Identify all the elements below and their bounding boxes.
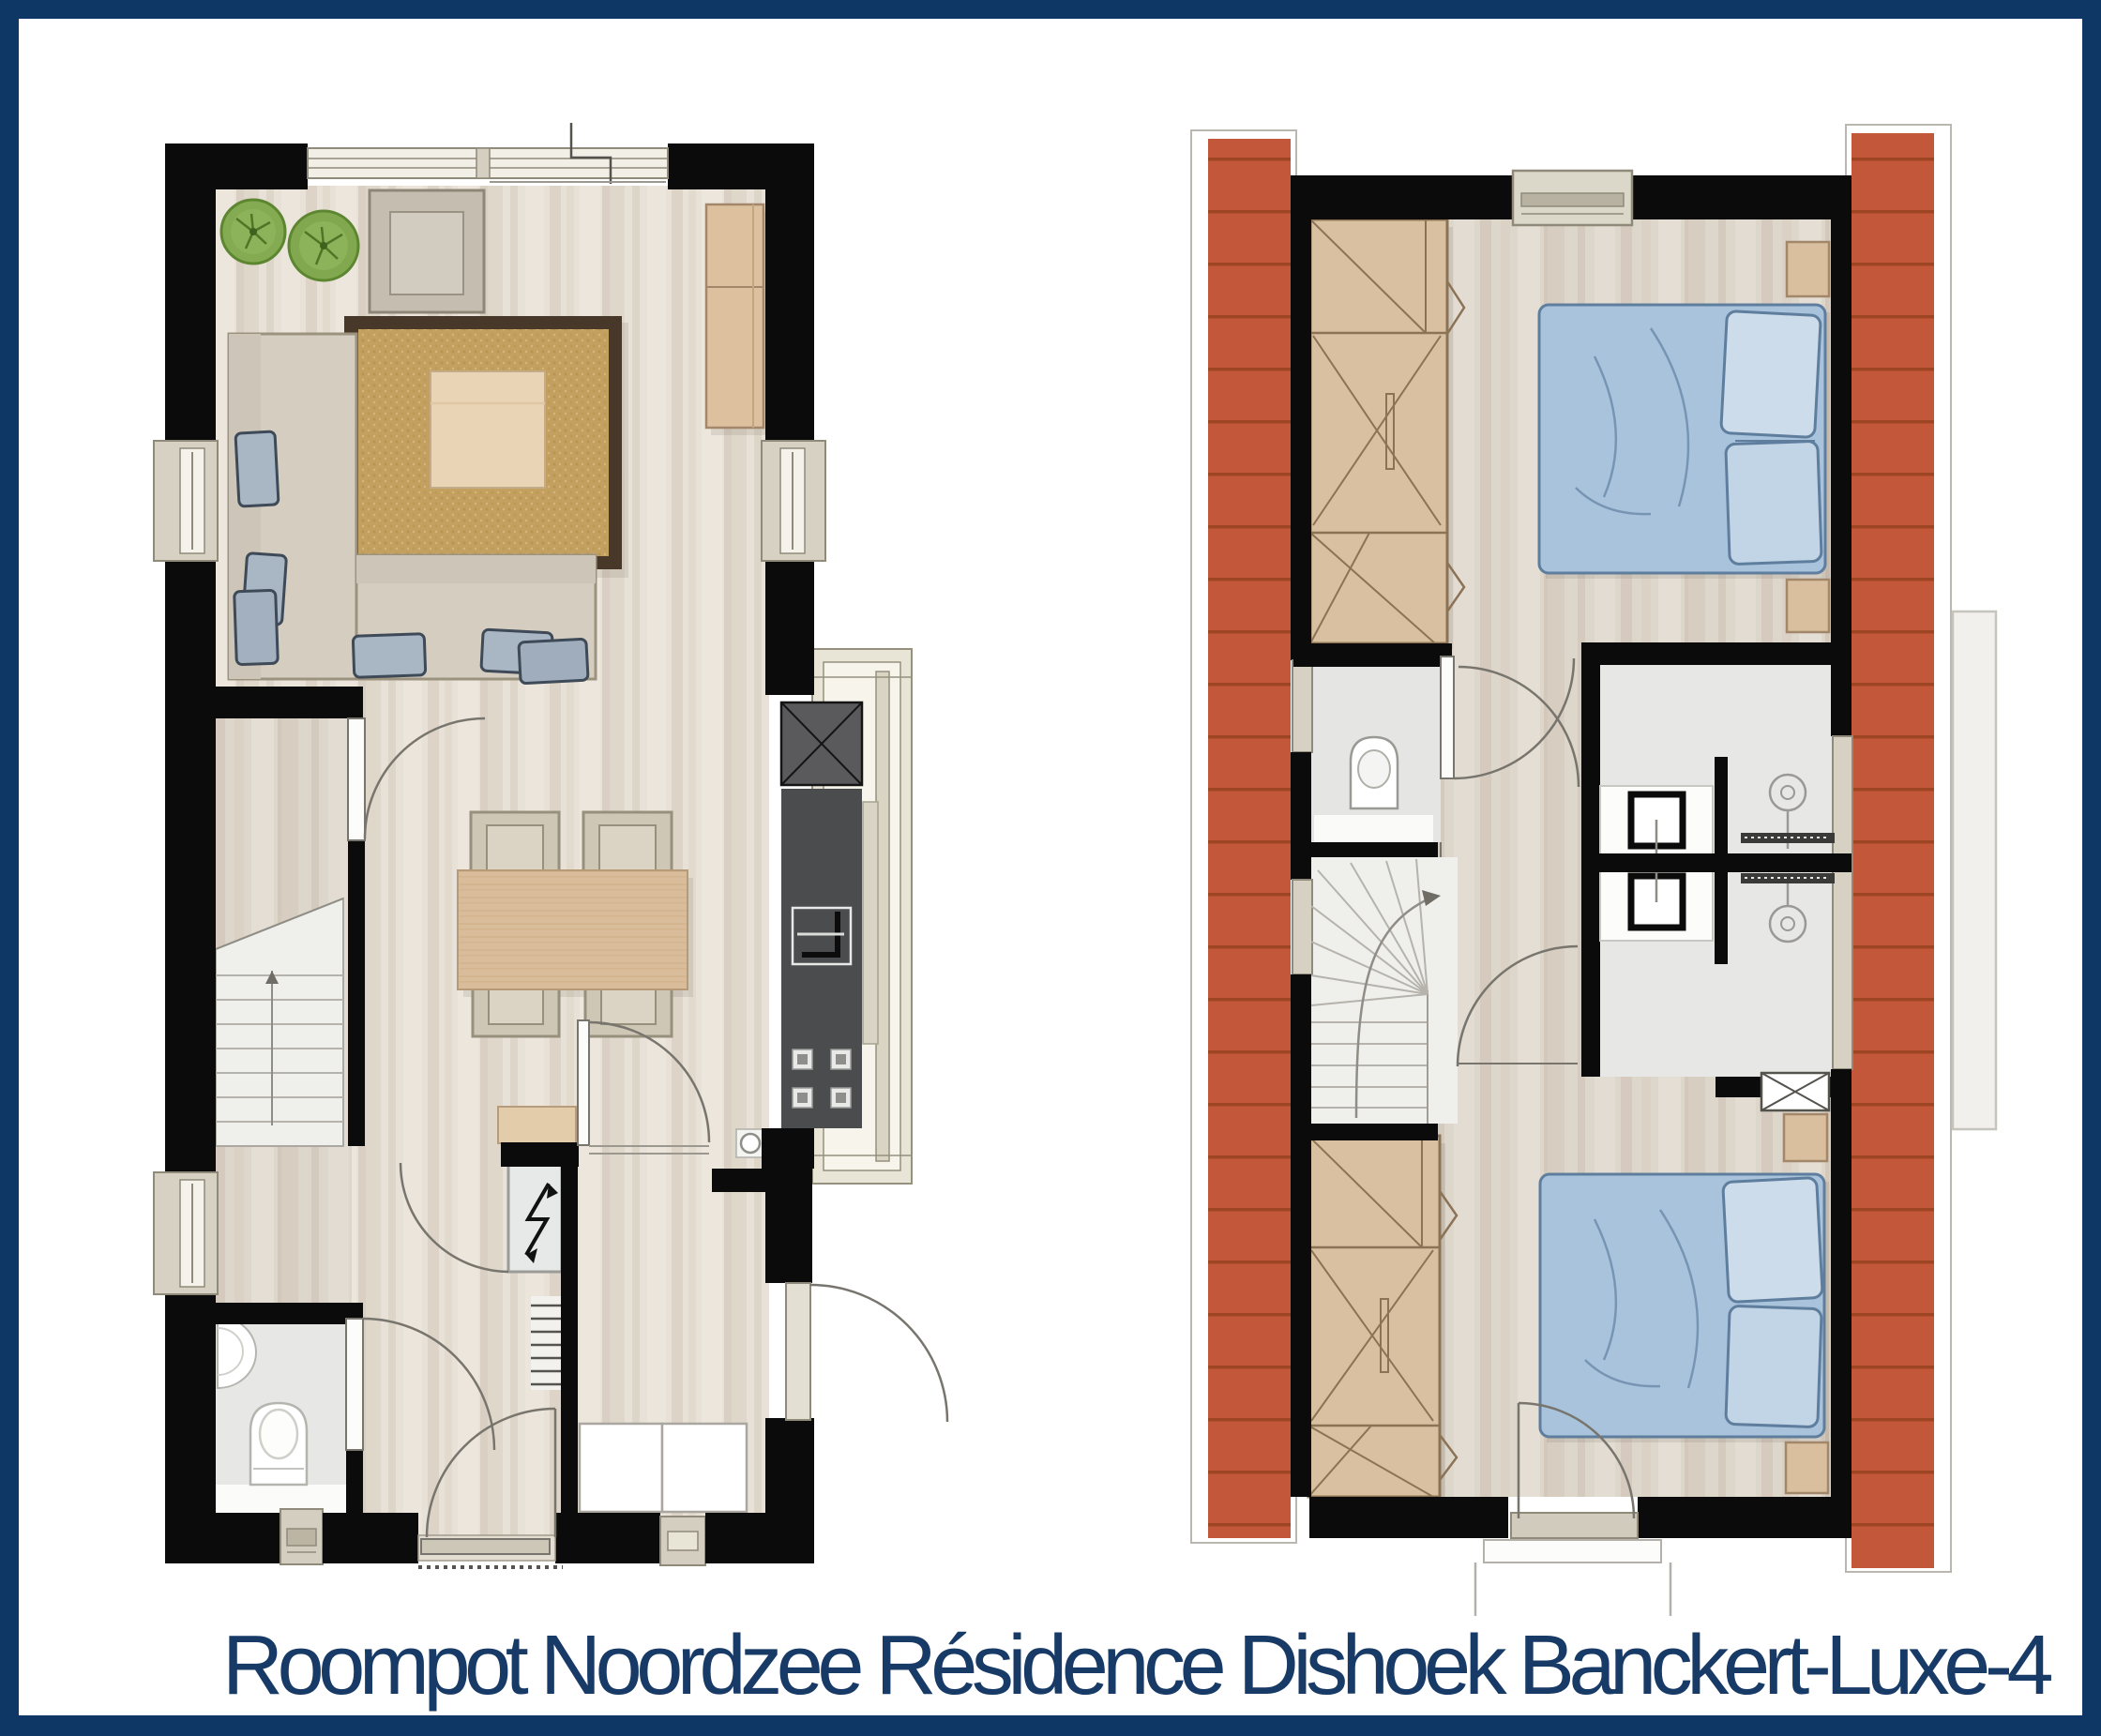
svg-text:Roompot Noordzee Résidence Dis: Roompot Noordzee Résidence Dishoek Banck…	[222, 1619, 2052, 1713]
